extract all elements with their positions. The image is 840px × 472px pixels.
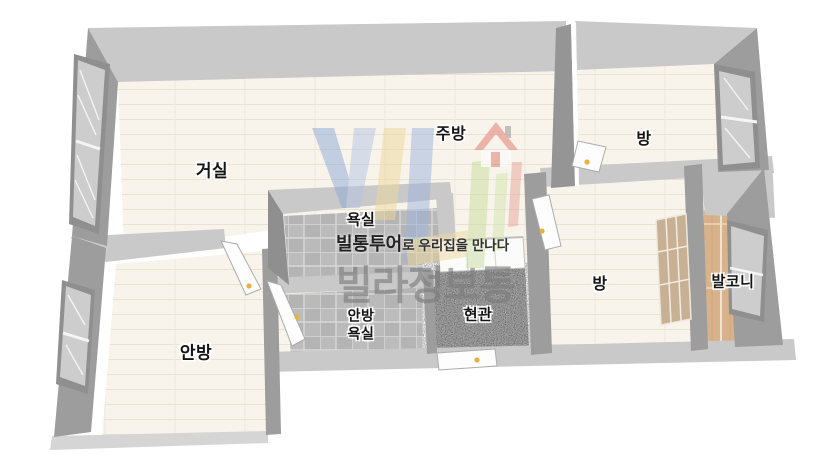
watermark-tagline-rest: 로 우리집을 만나다 xyxy=(402,238,509,253)
label-master-bedroom: 안방 xyxy=(180,339,212,364)
label-master-bathroom: 안방 욕실 xyxy=(348,307,375,344)
label-master-bathroom-line2: 욕실 xyxy=(348,325,375,343)
watermark-tagline-bold: 빌통투어 xyxy=(336,234,402,254)
top-room-window-icon xyxy=(714,64,760,171)
label-bedroom-top: 방 xyxy=(636,125,651,149)
label-kitchen: 주방 xyxy=(436,120,466,144)
label-balcony: 발코니 xyxy=(712,271,755,292)
label-living-room: 거실 xyxy=(196,157,228,182)
master-bedroom-window-icon xyxy=(56,280,95,394)
watermark-brand: 빌라정보통 xyxy=(336,253,515,311)
entrance-door-icon xyxy=(437,349,497,370)
label-bathroom: 욕실 xyxy=(347,209,376,230)
floorplan-screenshot: 거실 주방 방 욕실 방 발코니 안방 안방 욕실 현관 빌통투어로 우리집을 … xyxy=(0,0,840,472)
label-bedroom-mid: 방 xyxy=(592,270,607,294)
bedroom-base-slab xyxy=(50,431,268,450)
balcony-sliding-door-icon xyxy=(656,214,691,325)
